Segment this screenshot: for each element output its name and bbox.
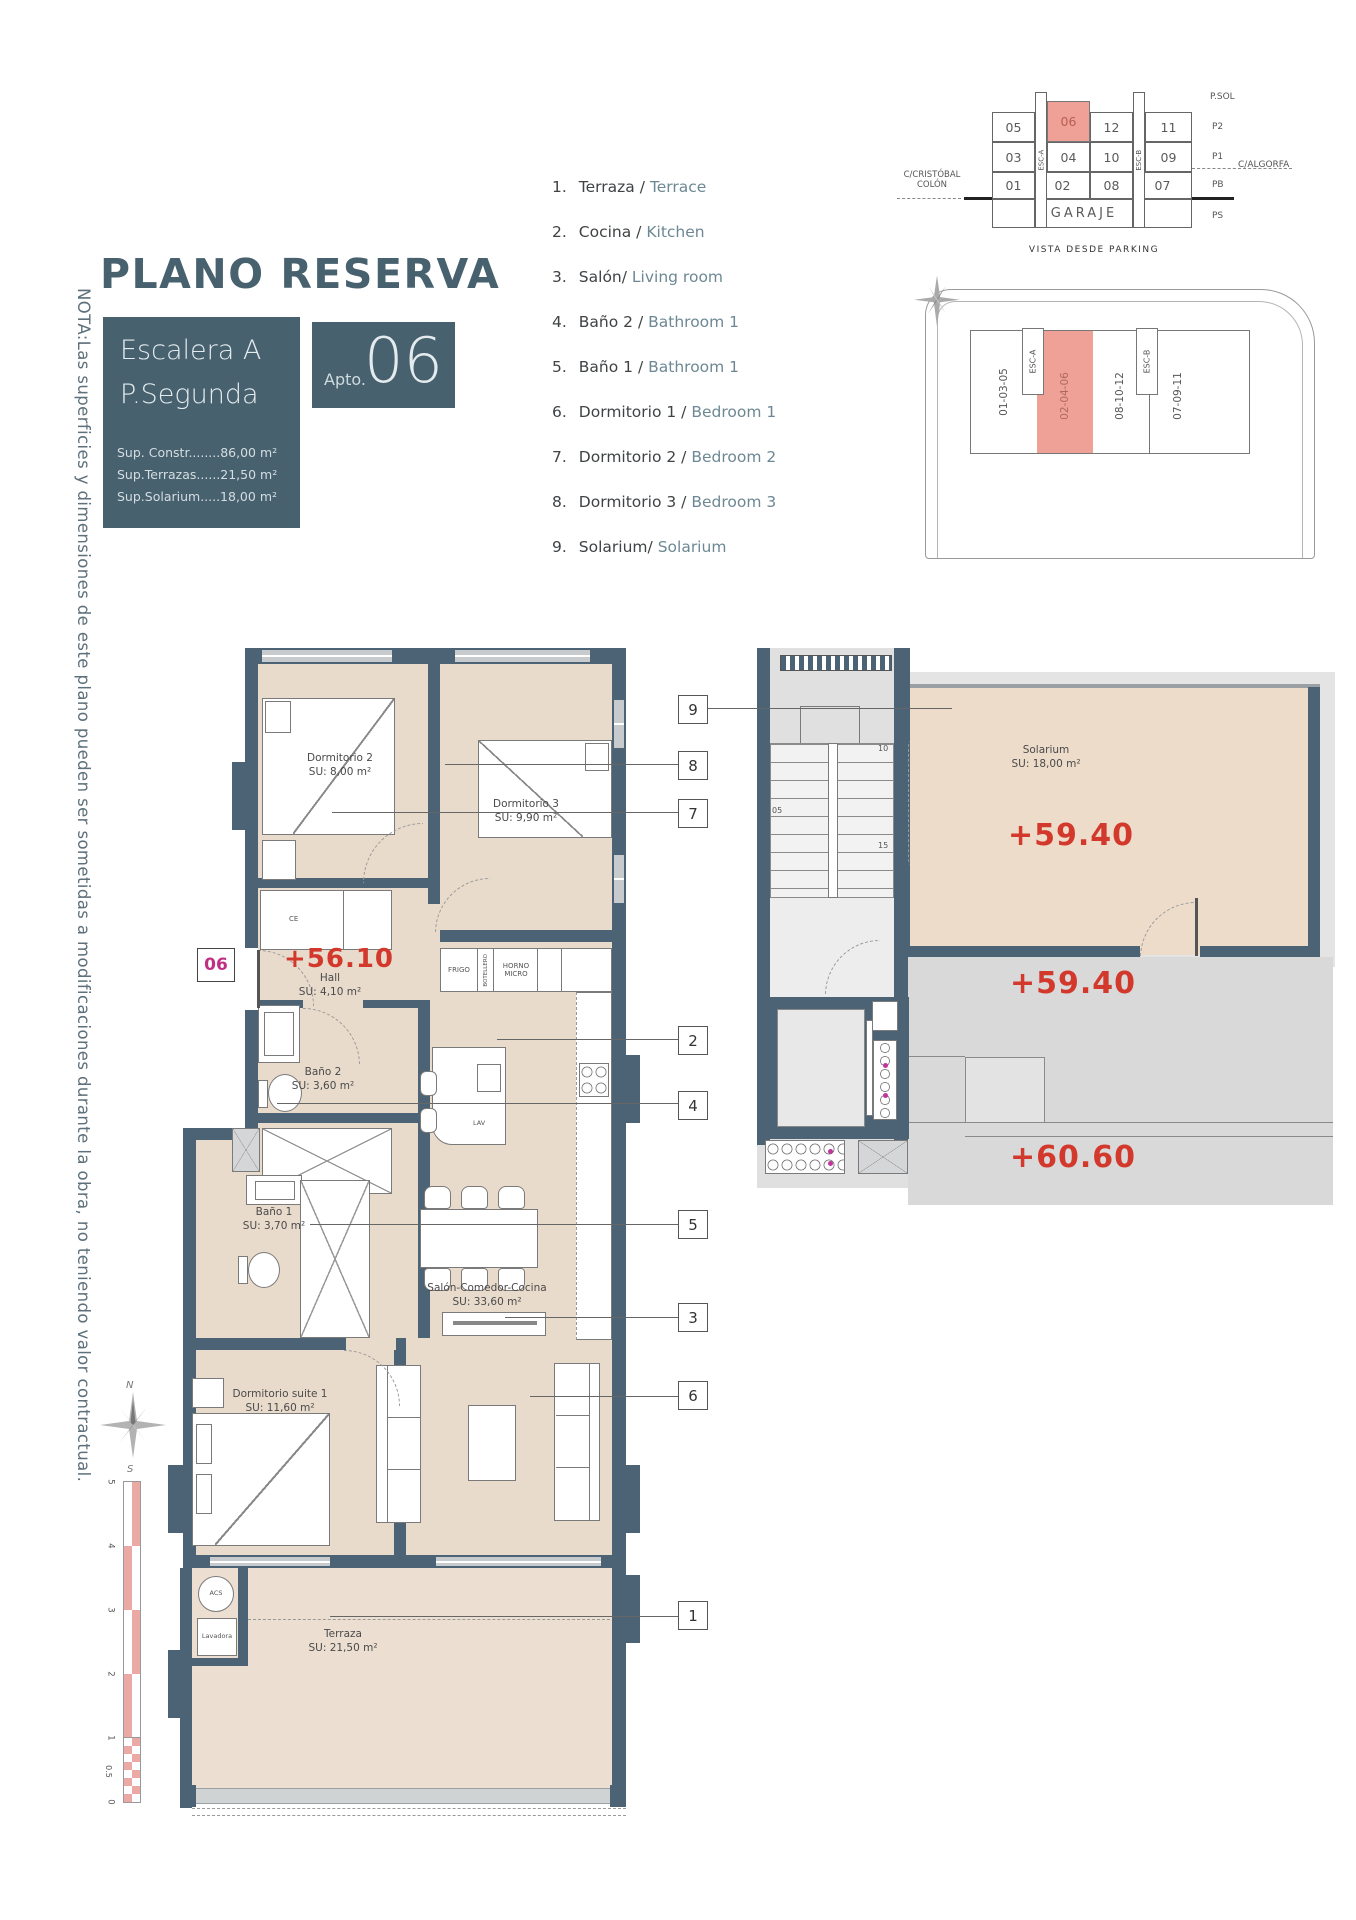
roof-band-line [908, 1122, 1333, 1123]
legend-item: 9. Solarium/ Solarium [552, 538, 726, 556]
scale-2: 2 [106, 1671, 116, 1676]
bed-suite [192, 1413, 330, 1546]
shower-bano1 [300, 1180, 370, 1338]
legend-es: Solarium/ [579, 538, 653, 556]
sofa-line [589, 1364, 590, 1520]
suite-name: Dormitorio suite 1 [222, 1388, 338, 1402]
rail-post [610, 1785, 626, 1807]
leader-3 [505, 1317, 678, 1318]
plano-reserva-sheet: NOTA:Las superficies y dimensiones de es… [0, 0, 1356, 1920]
section-caption: VISTA DESDE PARKING [1014, 245, 1174, 255]
wall-left-upper-a [245, 648, 258, 948]
info-sup-terrazas: Sup.Terrazas......21,50 m² [117, 467, 277, 482]
coffee-table [468, 1405, 516, 1481]
label-dorm2: Dormitorio 2 SU: 8,00 m² [280, 752, 400, 779]
horno-line2: MICRO [504, 970, 527, 978]
leader-9 [706, 708, 952, 709]
window [614, 855, 624, 903]
section-cell: 05 [992, 112, 1035, 142]
section-diagram: P.SOL P2 P1 PB PS C/CRISTÓBAL COLÓN C/AL… [992, 112, 1192, 228]
level-main: +56.10 [284, 944, 376, 974]
shaft [232, 1128, 260, 1172]
site-esc-b-label: ESC-B [1143, 350, 1152, 374]
strip-b-text: 02-04-06 [1059, 372, 1071, 420]
horno-line1: HORNO [503, 962, 529, 970]
lav-label: LAV [473, 1120, 485, 1128]
strip-c-text: 08-10-12 [1114, 372, 1126, 420]
hob [579, 1063, 609, 1097]
callout-6-num: 6 [688, 1387, 698, 1405]
callout-7-num: 7 [688, 805, 698, 823]
compass-n: N [126, 1380, 133, 1391]
hall-su: SU: 4,10 m² [295, 986, 365, 1000]
wall-utility [238, 1568, 248, 1664]
pillar [232, 762, 245, 830]
label-ps: PS [1212, 211, 1223, 222]
legend-num: 6. [552, 403, 567, 421]
callout-4: 4 [678, 1091, 708, 1120]
basin [255, 1181, 295, 1200]
callout-6: 6 [678, 1381, 708, 1410]
leader-4 [277, 1103, 678, 1104]
door-leaf-solarium [1195, 898, 1198, 956]
bano2-name: Baño 2 [287, 1066, 359, 1080]
site-compass-icon [911, 273, 963, 329]
pillar [626, 1465, 640, 1533]
legend-es: Salón/ [579, 268, 627, 286]
stair-num-05: 05 [772, 806, 782, 816]
legend-item: 1. Terraza / Terrace [552, 178, 706, 196]
installations-column [873, 1040, 897, 1120]
legend-item: 3. Salón/ Living room [552, 268, 723, 286]
terraza-name: Terraza [285, 1628, 401, 1642]
kitchen-cabinets: FRIGO BOTELLERO HORNO MICRO [440, 948, 612, 992]
legend-es: Dormitorio 2 / [579, 448, 687, 466]
wall-dorm2-dorm3 [428, 664, 440, 904]
callout-8-num: 8 [688, 757, 698, 775]
compass: N S [98, 1380, 168, 1480]
section-cell: 03 [992, 142, 1035, 172]
label-hall: Hall SU: 4,10 m² [295, 972, 365, 999]
apto-number: 06 [364, 324, 443, 397]
unit-tag-number: 06 [204, 955, 228, 975]
hob-burners [580, 1064, 608, 1096]
callout-5-num: 5 [688, 1216, 698, 1234]
magenta-mark [828, 1161, 833, 1166]
dorm3-su: SU: 9,90 m² [466, 812, 586, 826]
sofa-cushion [387, 1417, 420, 1418]
info-sup-solarium: Sup.Solarium.....18,00 m² [117, 489, 277, 504]
legend-num: 2. [552, 223, 567, 241]
legend-es: Cocina / [579, 223, 642, 241]
legend-en: Solarium [658, 538, 727, 556]
info-box: Escalera A P.Segunda Sup. Constr........… [103, 317, 300, 528]
botellero-text: BOTELLERO [483, 954, 490, 987]
level-solarium: +59.40 [1008, 818, 1124, 853]
leader-2 [497, 1039, 678, 1040]
legend-en: Bedroom 1 [691, 403, 776, 421]
legend-en: Bathroom 1 [648, 313, 739, 331]
sofa-cushion [556, 1415, 589, 1416]
section-cell-empty-left [992, 199, 1035, 228]
level-roof-lower: +60.60 [1010, 1140, 1126, 1175]
hall-name: Hall [295, 972, 365, 986]
core-vent-strip [780, 655, 892, 671]
lavadora-label: Lavadora [202, 1633, 232, 1641]
sofa-right [554, 1363, 600, 1521]
site-plan: 01-03-05 02-04-06 08-10-12 07-09-11 ESC-… [925, 285, 1320, 560]
pillar [168, 1465, 183, 1533]
info-escalera: Escalera A [120, 335, 261, 366]
legend-item: 6. Dormitorio 1 / Bedroom 1 [552, 403, 776, 421]
legend-num: 7. [552, 448, 567, 466]
pillow [265, 701, 291, 733]
terraza-rail [192, 1788, 626, 1804]
section-cell: 01 [992, 172, 1035, 199]
dining-chair [461, 1186, 488, 1209]
magenta-mark [883, 1063, 888, 1068]
callout-3: 3 [678, 1303, 708, 1332]
island: LAV [432, 1047, 506, 1145]
strip-a-text: 01-03-05 [998, 368, 1010, 416]
pillow [585, 743, 609, 771]
magenta-mark [828, 1149, 833, 1154]
site-esc-a-label: ESC-A [1029, 350, 1038, 374]
section-cell: 09 [1145, 142, 1192, 172]
cab-divider [537, 949, 538, 991]
terraza-dash-line [248, 1619, 610, 1620]
stair-landing-rail [800, 706, 860, 744]
roof-stairs [965, 1057, 1045, 1123]
legend-item: 4. Baño 2 / Bathroom 1 [552, 313, 739, 331]
legend-num: 8. [552, 493, 567, 511]
legend-num: 4. [552, 313, 567, 331]
sofa-cushion [556, 1467, 589, 1468]
window [614, 700, 624, 748]
legend-item: 8. Dormitorio 3 / Bedroom 3 [552, 493, 776, 511]
legend-en: Bathroom 1 [648, 358, 739, 376]
esc-a-label: ESC-A [1037, 150, 1045, 171]
nightstand [262, 840, 296, 880]
callout-9: 9 [678, 695, 708, 724]
solarium-wall-bottom-a [910, 946, 1140, 957]
magenta-mark [883, 1093, 888, 1098]
bano2-sink [258, 1005, 300, 1063]
closet-ce-label: CE [289, 915, 298, 923]
salon-name: Salón-Comedor-Cocina [420, 1282, 554, 1296]
dining-chair [498, 1186, 525, 1209]
tv-console [442, 1312, 546, 1336]
dining-chair [424, 1186, 451, 1209]
leader-5 [310, 1224, 678, 1225]
callout-1-num: 1 [688, 1607, 698, 1625]
dorm3-name: Dormitorio 3 [466, 798, 586, 812]
legend-item: 2. Cocina / Kitchen [552, 223, 705, 241]
wall-left-terraza [180, 1568, 192, 1808]
solarium-wall-right [1308, 687, 1320, 955]
sofa-cushion [387, 1469, 420, 1470]
legend-num: 5. [552, 358, 567, 376]
pillar [626, 1055, 640, 1123]
label-bano2: Baño 2 SU: 3,60 m² [287, 1066, 359, 1093]
stool [420, 1071, 437, 1096]
wall-right-terraza [612, 1568, 626, 1790]
unit-tag: 06 [197, 948, 235, 982]
callout-2: 2 [678, 1026, 708, 1055]
site-strip-label-d: 07-09-11 [1153, 371, 1203, 421]
dining-table [420, 1209, 538, 1268]
scale-4: 4 [106, 1543, 116, 1548]
roof-line [908, 1056, 965, 1057]
esc-b-label: ESC-B [1135, 150, 1143, 171]
legend-en: Living room [632, 268, 723, 286]
site-esc-b-box: ESC-B [1136, 328, 1158, 395]
bano1-name: Baño 1 [238, 1206, 310, 1220]
leader-6 [530, 1396, 678, 1397]
compass-s: S [127, 1464, 133, 1475]
window [262, 650, 392, 662]
label-pb: PB [1212, 180, 1224, 191]
scale-5: 5 [106, 1479, 116, 1484]
elevator-door-panel [866, 1020, 873, 1116]
legend-item: 7. Dormitorio 2 / Bedroom 2 [552, 448, 776, 466]
section-cell: 04 [1047, 142, 1090, 172]
legend-num: 9. [552, 538, 567, 556]
strip-d-text: 07-09-11 [1172, 372, 1184, 420]
scale-3: 3 [106, 1607, 116, 1612]
label-p2: P2 [1212, 122, 1223, 133]
scale-bar-major [124, 1482, 140, 1738]
bed-crease [215, 1414, 329, 1545]
legend-en: Terrace [650, 178, 706, 196]
street-right-dash [1192, 168, 1292, 169]
window-suite [210, 1557, 330, 1566]
legend-en: Kitchen [646, 223, 704, 241]
horno-label: HORNO MICRO [497, 962, 535, 979]
label-p1: P1 [1212, 152, 1223, 163]
label-salon: Salón-Comedor-Cocina SU: 33,60 m² [420, 1282, 554, 1309]
equipment-hob-box [765, 1140, 845, 1174]
legend-item: 5. Baño 1 / Bathroom 1 [552, 358, 739, 376]
section-cell: 11 [1145, 112, 1192, 142]
callout-1: 1 [678, 1601, 708, 1630]
suite-su: SU: 11,60 m² [222, 1402, 338, 1416]
pillow [196, 1424, 212, 1464]
scale-bar-fine [124, 1738, 140, 1802]
street-right: C/ALGORFA [1238, 160, 1289, 171]
scale-0: 0 [106, 1799, 116, 1804]
apto-box: Apto. 06 [312, 322, 455, 408]
site-footprint: 01-03-05 02-04-06 08-10-12 07-09-11 [970, 330, 1250, 454]
pillow [196, 1474, 212, 1514]
label-psol: P.SOL [1210, 92, 1235, 103]
stair-num-15: 15 [878, 841, 888, 851]
legend-num: 3. [552, 268, 567, 286]
level-roof-upper: +59.40 [1010, 966, 1126, 1001]
street-left-line2: COLÓN [897, 180, 967, 190]
door-leaf-entrance [257, 950, 260, 1008]
equipment-x-box [858, 1140, 908, 1174]
callout-8: 8 [678, 751, 708, 780]
callout-4-num: 4 [688, 1097, 698, 1115]
bano1-su: SU: 3,70 m² [238, 1220, 310, 1234]
bano1-toilet-tank [238, 1256, 248, 1284]
wall-suite-top-a [196, 1338, 346, 1350]
legend-es: Terraza / [579, 178, 645, 196]
callout-7: 7 [678, 799, 708, 828]
dorm2-name: Dormitorio 2 [280, 752, 400, 766]
legend-es: Dormitorio 1 / [579, 403, 687, 421]
acs-boiler: ACS [198, 1576, 234, 1612]
label-solarium: Solarium SU: 18,00 m² [998, 744, 1094, 771]
stair-num-10: 10 [878, 744, 888, 754]
legend-es: Baño 2 / [579, 313, 643, 331]
wall-suite-top-b [396, 1338, 406, 1350]
wall-left-upper-b [245, 1010, 258, 1140]
pillar [626, 1575, 640, 1643]
basin [264, 1012, 294, 1056]
cab-divider [561, 949, 562, 991]
label-terraza: Terraza SU: 21,50 m² [285, 1628, 401, 1655]
legend-en: Bedroom 2 [691, 448, 776, 466]
section-cell: 10 [1090, 142, 1133, 172]
stool [420, 1108, 437, 1133]
scale-05: 0.5 [104, 1765, 113, 1778]
solarium-wall-bottom-b [1200, 946, 1320, 957]
callout-3-num: 3 [688, 1309, 698, 1327]
compass-rose-icon [98, 1392, 168, 1458]
wall-bano-div [258, 1113, 430, 1123]
info-planta: P.Segunda [120, 379, 259, 410]
roof-band-line [965, 1136, 1333, 1137]
site-esc-a-box: ESC-A [1022, 328, 1044, 395]
bano1-toilet [248, 1252, 280, 1288]
site-strip-label-b: 02-04-06 [1040, 371, 1090, 421]
dorm2-su: SU: 8,00 m² [280, 766, 400, 780]
stair-center-rail [828, 743, 838, 898]
note-vertical: NOTA:Las superficies y dimensiones de es… [71, 288, 93, 1648]
bano2-su: SU: 3,60 m² [287, 1080, 359, 1094]
solarium-top-edge [910, 684, 1320, 688]
label-suite: Dormitorio suite 1 SU: 11,60 m² [222, 1388, 338, 1415]
leader-1 [330, 1616, 678, 1617]
floor-terraza [192, 1568, 612, 1788]
section-cell-garaje: GARAJE [1035, 199, 1133, 228]
elevator-cab [777, 1009, 865, 1127]
callout-2-num: 2 [688, 1032, 698, 1050]
closet-dorm2: CE [260, 890, 392, 950]
section-esc-a: ESC-A [1035, 92, 1047, 228]
window [455, 650, 590, 662]
scale-1: 1 [106, 1735, 116, 1740]
legend-num: 1. [552, 178, 567, 196]
bano1-sink [246, 1175, 302, 1205]
tv [453, 1321, 537, 1325]
section-esc-b: ESC-B [1133, 92, 1145, 228]
pillar [168, 1650, 180, 1718]
bano2-toilet-tank [258, 1080, 268, 1108]
closet-divider [343, 891, 344, 949]
kitchen-counter-right [576, 992, 612, 1340]
wall-utility-bottom [192, 1658, 248, 1666]
solarium-su: SU: 18,00 m² [998, 758, 1094, 772]
legend-es: Dormitorio 3 / [579, 493, 687, 511]
elevator-top-box [872, 1001, 898, 1031]
street-left: C/CRISTÓBAL COLÓN [897, 170, 967, 190]
apto-label: Apto. [324, 370, 366, 389]
salon-su: SU: 33,60 m² [420, 1296, 554, 1310]
section-cell: 08 [1090, 172, 1133, 199]
leader-7 [332, 812, 678, 813]
callout-5: 5 [678, 1210, 708, 1239]
section-cell: 12 [1090, 112, 1133, 142]
terraza-edge-lines [192, 1808, 626, 1816]
washer: Lavadora [197, 1618, 237, 1656]
legend-en: Bedroom 3 [691, 493, 776, 511]
nightstand [192, 1378, 224, 1408]
island-sink [477, 1064, 501, 1092]
page-title: PLANO RESERVA [100, 250, 580, 298]
callout-9-num: 9 [688, 701, 698, 719]
leader-8 [445, 764, 678, 765]
wall-bano2-top-b [363, 1000, 418, 1008]
label-bano1: Baño 1 SU: 3,70 m² [238, 1206, 310, 1233]
legend: 1. Terraza / Terrace 2. Cocina / Kitchen… [552, 170, 862, 570]
acs-label: ACS [210, 1590, 223, 1598]
terraza-su: SU: 21,50 m² [285, 1642, 401, 1656]
street-left-dash [897, 198, 961, 199]
section-cell-06-highlight: 06 [1047, 101, 1090, 142]
street-left-line1: C/CRISTÓBAL [897, 170, 967, 180]
wall-right [612, 648, 626, 1568]
sliding-door-living [436, 1557, 601, 1566]
solarium-name: Solarium [998, 744, 1094, 758]
rail-post [180, 1785, 196, 1807]
info-sup-constr: Sup. Constr........86,00 m² [117, 445, 277, 460]
legend-es: Baño 1 / [579, 358, 643, 376]
